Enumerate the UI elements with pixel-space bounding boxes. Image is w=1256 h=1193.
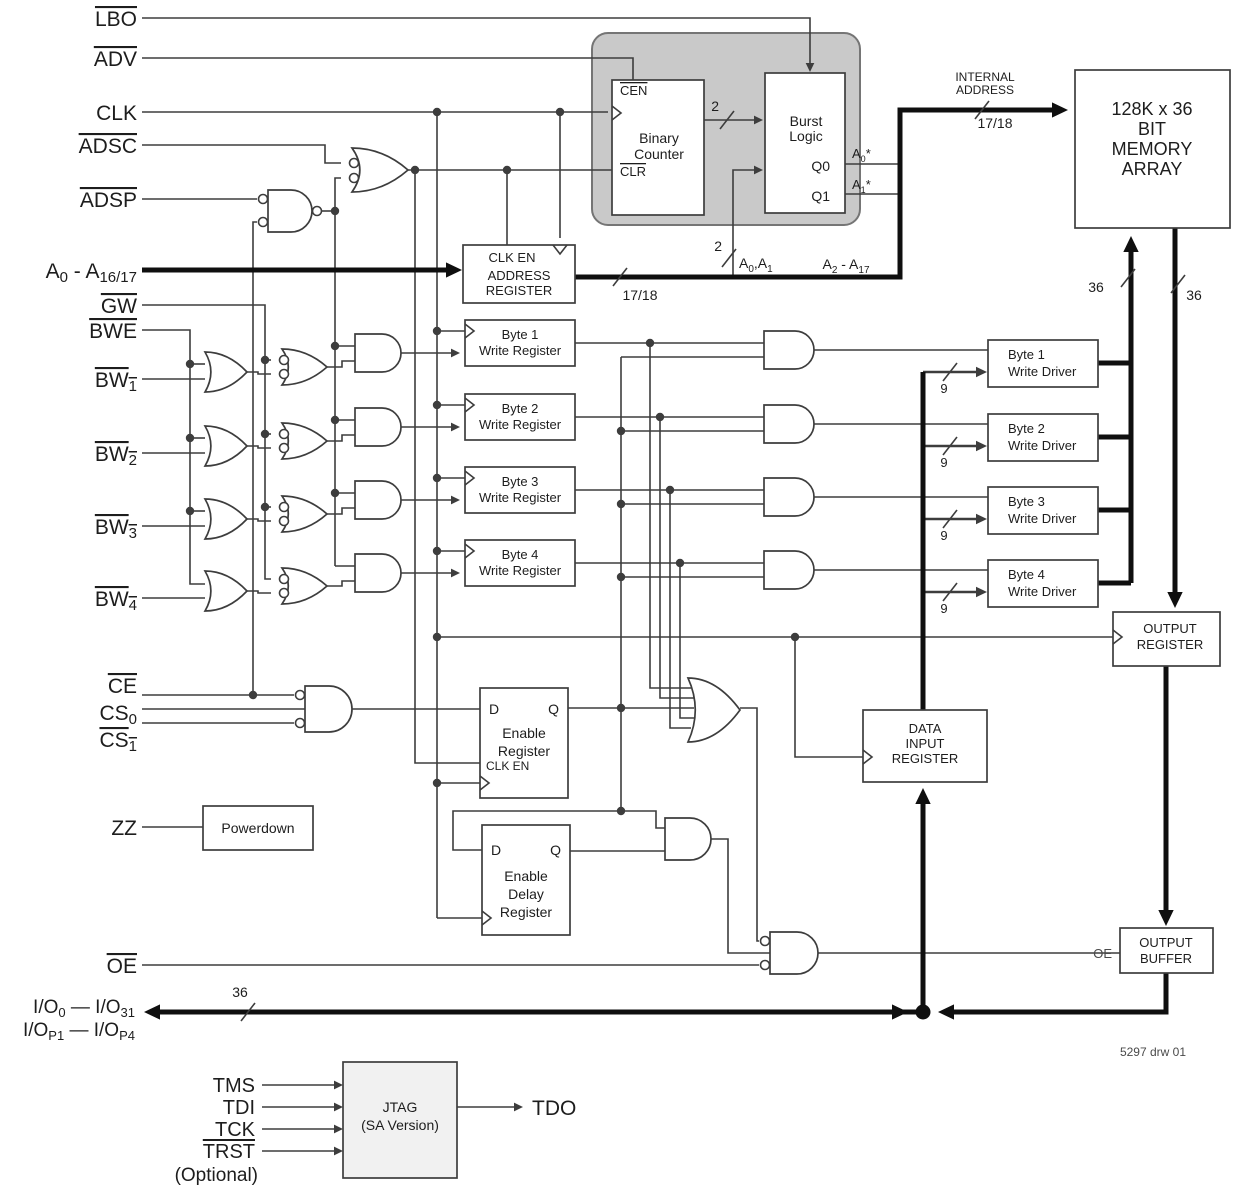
drv4-label-2: Write Driver (1008, 584, 1077, 599)
io-label-2: I/OP1 — I/OP4 (23, 1020, 135, 1043)
or-nor-3 (247, 519, 271, 521)
junction-dot-2 (411, 166, 419, 174)
jtag-label-1: JTAG (383, 1099, 418, 1115)
adsp-nand-gate-output-bubble (313, 207, 322, 216)
areg-label-1: CLK EN (489, 250, 536, 265)
mem-write-arrow (1123, 236, 1138, 252)
bw4-or-gate (205, 571, 247, 611)
junction-dot-0 (433, 108, 441, 116)
bw3-nor-gate-input-bubble-1 (280, 517, 289, 526)
junction-dot-7 (186, 434, 194, 442)
breg4-label-2: Write Register (479, 563, 562, 578)
nor-and-3 (327, 508, 355, 514)
drv2-label-1: Byte 2 (1008, 421, 1045, 436)
width9-4: 9 (940, 601, 947, 616)
junction-dot-28 (617, 704, 625, 712)
or-nor-1 (247, 372, 271, 374)
breg1-label-1: Byte 1 (502, 327, 539, 342)
drv1-label-1: Byte 1 (1008, 347, 1045, 362)
width36-read: 36 (1186, 287, 1202, 303)
drv1-and-gate (764, 331, 814, 369)
addr-in-arrow (446, 262, 462, 277)
chip-enable-and-gate (305, 686, 352, 732)
width9-2: 9 (940, 455, 947, 470)
enable-or-gate (688, 678, 740, 742)
buffer-to-io (948, 973, 1166, 1012)
junction-dot-10 (261, 430, 269, 438)
junction-dot-26 (617, 500, 625, 508)
breg3-label-2: Write Register (479, 490, 562, 505)
trst-label: TRST (203, 1141, 255, 1163)
counter-width-label: 2 (711, 98, 719, 114)
mem-label-2: BIT (1138, 119, 1166, 139)
cs1-label: CS1 (99, 729, 137, 755)
enreg-clken-label: CLK EN (486, 759, 529, 773)
adsp-label: ADSP (80, 189, 137, 212)
bw2-nor-gate (282, 423, 327, 459)
bwe-label: BWE (89, 320, 137, 343)
bw1-nor-gate-input-bubble-0 (280, 356, 289, 365)
datareg-label-1: DATA (909, 721, 942, 736)
powerdown-label: Powerdown (221, 820, 294, 836)
bw1-nor-gate-input-bubble-1 (280, 370, 289, 379)
din-arrow-4 (976, 587, 987, 598)
clk-label: CLK (96, 102, 137, 125)
bw3-label: BW3 (95, 516, 137, 542)
datareg-in-arrow (915, 788, 930, 804)
delay-label-2: Delay (508, 886, 544, 902)
breg3-label-1: Byte 3 (502, 474, 539, 489)
io-label-1: I/O0 — I/O31 (33, 997, 135, 1020)
junction-dot-3 (503, 166, 511, 174)
reg-in-arrow-1 (451, 349, 460, 358)
bw2-nor-gate-input-bubble-1 (280, 444, 289, 453)
addr-width-mem: 17/18 (977, 115, 1012, 131)
junction-dot-30 (791, 633, 799, 641)
drv3-and-gate (764, 478, 814, 516)
addr-width-reg: 17/18 (622, 287, 657, 303)
breg1-label-2: Write Register (479, 343, 562, 358)
enreg-label-1: Enable (502, 725, 546, 741)
delay-label-3: Register (500, 904, 552, 920)
junction-dot-6 (186, 360, 194, 368)
tdi-arrow (334, 1103, 343, 1112)
junction-dot-21 (646, 339, 654, 347)
width9-3: 9 (940, 528, 947, 543)
tms-arrow (334, 1081, 343, 1090)
mem-label-1: 128K x 36 (1111, 99, 1192, 119)
clr-label: CLR (620, 164, 646, 179)
junction-dot-23 (666, 486, 674, 494)
output-enable-nand-gate-input-bubble-0 (761, 937, 770, 946)
drv4-and-gate (764, 551, 814, 589)
binary-label: Binary (639, 130, 679, 146)
junction-dot-5 (249, 691, 257, 699)
adsc-or-gate (352, 148, 408, 192)
datareg-label-3: REGISTER (892, 751, 958, 766)
feedback-to-and (621, 811, 665, 828)
internal-label-2: ADDRESS (956, 83, 1014, 97)
bw3-or-gate (205, 499, 247, 539)
junction-dot-11 (261, 503, 269, 511)
or-nor-4 (247, 591, 271, 593)
a2a17-label: A2 - A17 (822, 256, 869, 276)
bw3-and-gate (355, 481, 401, 519)
din-arrow-2 (976, 441, 987, 452)
addr-bus-label: A0 - A16/17 (46, 260, 137, 286)
bw1-and-gate (355, 334, 401, 372)
zz-label: ZZ (111, 817, 137, 840)
areg-label-2: ADDRESS (488, 268, 551, 283)
or-drop-2 (660, 417, 694, 698)
bus-junction-dot-0 (916, 1005, 931, 1020)
functional-block-diagram: LBOADVCLKADSCADSPA0 - A16/17GWBWEBW1BW2B… (0, 0, 1256, 1193)
reg-in-arrow-3 (451, 496, 460, 505)
buffer-in-arrow (1158, 910, 1173, 926)
drawing-number: 5297 drw 01 (1120, 1045, 1186, 1059)
delay-d-label: D (491, 842, 501, 858)
junction-dot-27 (617, 573, 625, 581)
tdi-label: TDI (223, 1097, 255, 1119)
enreg-d-label: D (489, 701, 499, 717)
optional-label: (Optional) (175, 1165, 258, 1186)
drv3-label-1: Byte 3 (1008, 494, 1045, 509)
junction-dot-20 (433, 779, 441, 787)
chip-enable-and-gate-input-bubble-0 (296, 691, 305, 700)
burst-label-2: Logic (789, 128, 822, 144)
junction-dot-14 (331, 489, 339, 497)
oe-label: OE (107, 955, 137, 978)
nor-and-4 (327, 581, 355, 586)
reg-in-arrow-2 (451, 423, 460, 432)
datareg-label-2: INPUT (906, 736, 945, 751)
tms-label: TMS (213, 1075, 255, 1097)
junction-dot-29 (617, 807, 625, 815)
adv-label: ADV (94, 48, 137, 71)
delay-label-1: Enable (504, 868, 548, 884)
trst-arrow (334, 1147, 343, 1156)
breg4-label-1: Byte 4 (502, 547, 539, 562)
output-enable-nand-gate (770, 932, 818, 974)
bw3-nor-gate-input-bubble-0 (280, 503, 289, 512)
nor-and-2 (327, 435, 355, 441)
datareg-clk-drop (795, 637, 863, 757)
lbo-label: LBO (95, 8, 137, 31)
width36-io: 36 (232, 984, 248, 1000)
cs0-label: CS0 (99, 702, 137, 728)
jtag-label-2: (SA Version) (361, 1117, 439, 1133)
junction-dot-16 (433, 401, 441, 409)
io-right-arrow (938, 1004, 954, 1019)
enable-or-out (740, 708, 759, 941)
nor-and-1 (327, 361, 355, 367)
counter-label: Counter (634, 146, 684, 162)
or-drop-4 (680, 563, 694, 718)
io-mid-arrow (892, 1004, 908, 1019)
bw4-nor-gate-input-bubble-1 (280, 589, 289, 598)
breg2-label-1: Byte 2 (502, 401, 539, 416)
junction-dot-18 (433, 547, 441, 555)
junction-dot-19 (433, 633, 441, 641)
bw1-label: BW1 (95, 369, 137, 395)
io-left-arrow (144, 1004, 160, 1019)
bw1-or-gate (205, 352, 247, 392)
adsp-nand-gate-input-bubble-0 (259, 195, 268, 204)
mem-label-4: ARRAY (1122, 159, 1183, 179)
width36-write: 36 (1088, 279, 1104, 295)
din-arrow-3 (976, 514, 987, 525)
drv1-label-2: Write Driver (1008, 364, 1077, 379)
bw1-nor-gate (282, 349, 327, 385)
junction-dot-13 (331, 416, 339, 424)
outreg-label-1: OUTPUT (1143, 621, 1197, 636)
bw2-and-gate (355, 408, 401, 446)
outbuf-label-2: BUFFER (1140, 951, 1192, 966)
cen-label: CEN (620, 83, 647, 98)
tck-label: TCK (215, 1119, 256, 1141)
adsc-wire (142, 145, 341, 163)
junction-dot-8 (186, 507, 194, 515)
delay-q-label: Q (550, 842, 561, 858)
adsc-or-gate-input-bubble-0 (350, 159, 359, 168)
junction-dot-4 (331, 207, 339, 215)
width9-1: 9 (940, 381, 947, 396)
output-enable-nand-gate-input-bubble-1 (761, 961, 770, 970)
oe-buffer-label: OE (1093, 946, 1112, 961)
tdo-label: TDO (532, 1097, 576, 1120)
junction-dot-22 (656, 413, 664, 421)
junction-dot-9 (261, 356, 269, 364)
q0-label: Q0 (811, 158, 830, 174)
gw-label: GW (101, 295, 137, 318)
bw2-label: BW2 (95, 443, 137, 469)
enreg-label-2: Register (498, 743, 550, 759)
tdo-arrow (514, 1103, 523, 1112)
ce-label: CE (108, 675, 137, 698)
a0a1-width-label: 2 (714, 238, 722, 254)
junction-dot-25 (617, 427, 625, 435)
bwe-rail (142, 330, 205, 584)
enreg-q-label: Q (548, 701, 559, 717)
junction-dot-12 (331, 342, 339, 350)
tck-arrow (334, 1125, 343, 1134)
adsc-or-gate-input-bubble-1 (350, 174, 359, 183)
drv2-label-2: Write Driver (1008, 438, 1077, 453)
adv-wire (142, 58, 633, 80)
bus-width-slash-3 (722, 249, 736, 267)
junction-dot-24 (676, 559, 684, 567)
junction-dot-17 (433, 474, 441, 482)
bw4-label: BW4 (95, 588, 137, 614)
drv2-and-gate (764, 405, 814, 443)
chip-enable-and-gate-input-bubble-1 (296, 719, 305, 728)
adsc-label: ADSC (79, 135, 137, 158)
bw4-and-gate (355, 554, 401, 592)
enable-delay-and-gate (665, 818, 711, 860)
bw2-or-gate (205, 426, 247, 466)
bw4-nor-gate-input-bubble-0 (280, 575, 289, 584)
internal-addr-arrow (1052, 102, 1068, 117)
outreg-label-2: REGISTER (1137, 637, 1203, 652)
breg2-label-2: Write Register (479, 417, 562, 432)
internal-label-1: INTERNAL (955, 70, 1015, 84)
burst-label-1: Burst (790, 113, 823, 129)
junction-dot-1 (556, 108, 564, 116)
bw4-nor-gate (282, 568, 327, 604)
a0a1-label: A0,A1 (739, 255, 773, 275)
junction-dot-15 (433, 327, 441, 335)
drv4-label-1: Byte 4 (1008, 567, 1045, 582)
outbuf-label-1: OUTPUT (1139, 935, 1193, 950)
mem-read-arrow (1167, 592, 1182, 608)
q1-label: Q1 (811, 188, 830, 204)
reg-in-arrow-4 (451, 569, 460, 578)
adsp-to-or (335, 178, 341, 211)
or-nor-2 (247, 446, 271, 448)
din-arrow-1 (976, 367, 987, 378)
areg-label-3: REGISTER (486, 283, 552, 298)
adsp-nand-gate (268, 190, 312, 232)
adsp-nand-gate-input-bubble-1 (259, 218, 268, 227)
bw3-nor-gate (282, 496, 327, 532)
mem-label-3: MEMORY (1112, 139, 1193, 159)
ce-feedback-rail (253, 222, 257, 695)
drv3-label-2: Write Driver (1008, 511, 1077, 526)
delay-and-out (711, 839, 770, 953)
bw2-nor-gate-input-bubble-0 (280, 430, 289, 439)
block-diagram-svg: LBOADVCLKADSCADSPA0 - A16/17GWBWEBW1BW2B… (0, 0, 1256, 1193)
